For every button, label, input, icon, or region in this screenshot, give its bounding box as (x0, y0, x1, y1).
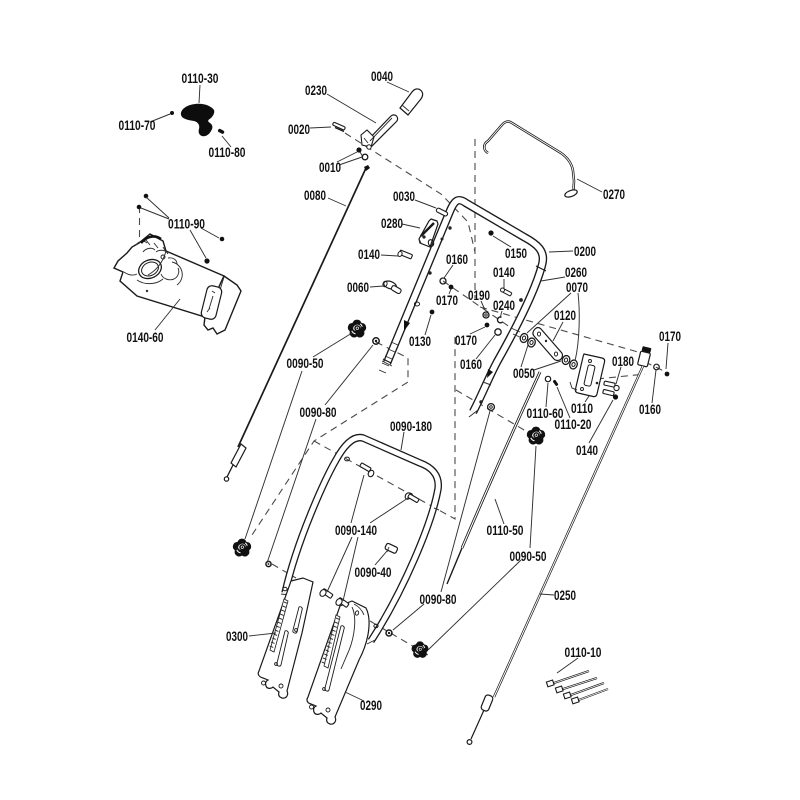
svg-text:0090-180: 0090-180 (390, 419, 432, 434)
svg-text:0040: 0040 (371, 69, 393, 84)
svg-text:0160: 0160 (639, 402, 661, 417)
svg-text:0230: 0230 (305, 83, 327, 98)
svg-text:0170: 0170 (455, 333, 477, 348)
svg-text:0090-50: 0090-50 (510, 549, 547, 564)
svg-text:0140: 0140 (493, 265, 515, 280)
svg-text:0110-90: 0110-90 (168, 217, 205, 232)
svg-text:0160: 0160 (446, 252, 468, 267)
svg-text:0110-10: 0110-10 (565, 645, 602, 660)
svg-text:0060: 0060 (347, 280, 369, 295)
svg-text:0110-70: 0110-70 (119, 118, 156, 133)
svg-text:0130: 0130 (409, 334, 431, 349)
svg-text:0270: 0270 (603, 187, 625, 202)
svg-text:0070: 0070 (566, 280, 588, 295)
svg-text:0180: 0180 (612, 354, 634, 369)
svg-text:0260: 0260 (565, 265, 587, 280)
svg-text:0110-20: 0110-20 (555, 417, 592, 432)
svg-text:0090-40: 0090-40 (355, 565, 392, 580)
svg-text:0110: 0110 (571, 401, 593, 416)
svg-text:0090-80: 0090-80 (420, 592, 457, 607)
svg-text:0090-140: 0090-140 (335, 523, 377, 538)
svg-text:0250: 0250 (554, 588, 576, 603)
svg-text:0020: 0020 (288, 122, 310, 137)
svg-text:0150: 0150 (505, 246, 527, 261)
svg-text:0050: 0050 (513, 366, 535, 381)
svg-text:0110-80: 0110-80 (209, 145, 246, 160)
svg-text:0110-30: 0110-30 (182, 71, 219, 86)
svg-text:0170: 0170 (659, 329, 681, 344)
svg-text:0140: 0140 (358, 247, 380, 262)
svg-text:0080: 0080 (304, 188, 326, 203)
svg-text:0140: 0140 (576, 443, 598, 458)
svg-text:0110-50: 0110-50 (487, 523, 524, 538)
svg-text:0170: 0170 (436, 293, 458, 308)
svg-text:0190: 0190 (468, 288, 490, 303)
svg-text:0010: 0010 (319, 160, 341, 175)
svg-text:0120: 0120 (554, 308, 576, 323)
svg-text:0030: 0030 (393, 189, 415, 204)
svg-text:0240: 0240 (493, 298, 515, 313)
svg-text:0280: 0280 (381, 216, 403, 231)
svg-text:0290: 0290 (360, 698, 382, 713)
svg-text:0090-80: 0090-80 (300, 405, 337, 420)
svg-text:0300: 0300 (226, 629, 248, 644)
svg-text:0160: 0160 (460, 357, 482, 372)
svg-text:0200: 0200 (574, 244, 596, 259)
svg-text:0090-50: 0090-50 (287, 356, 324, 371)
svg-text:0140-60: 0140-60 (127, 330, 164, 345)
